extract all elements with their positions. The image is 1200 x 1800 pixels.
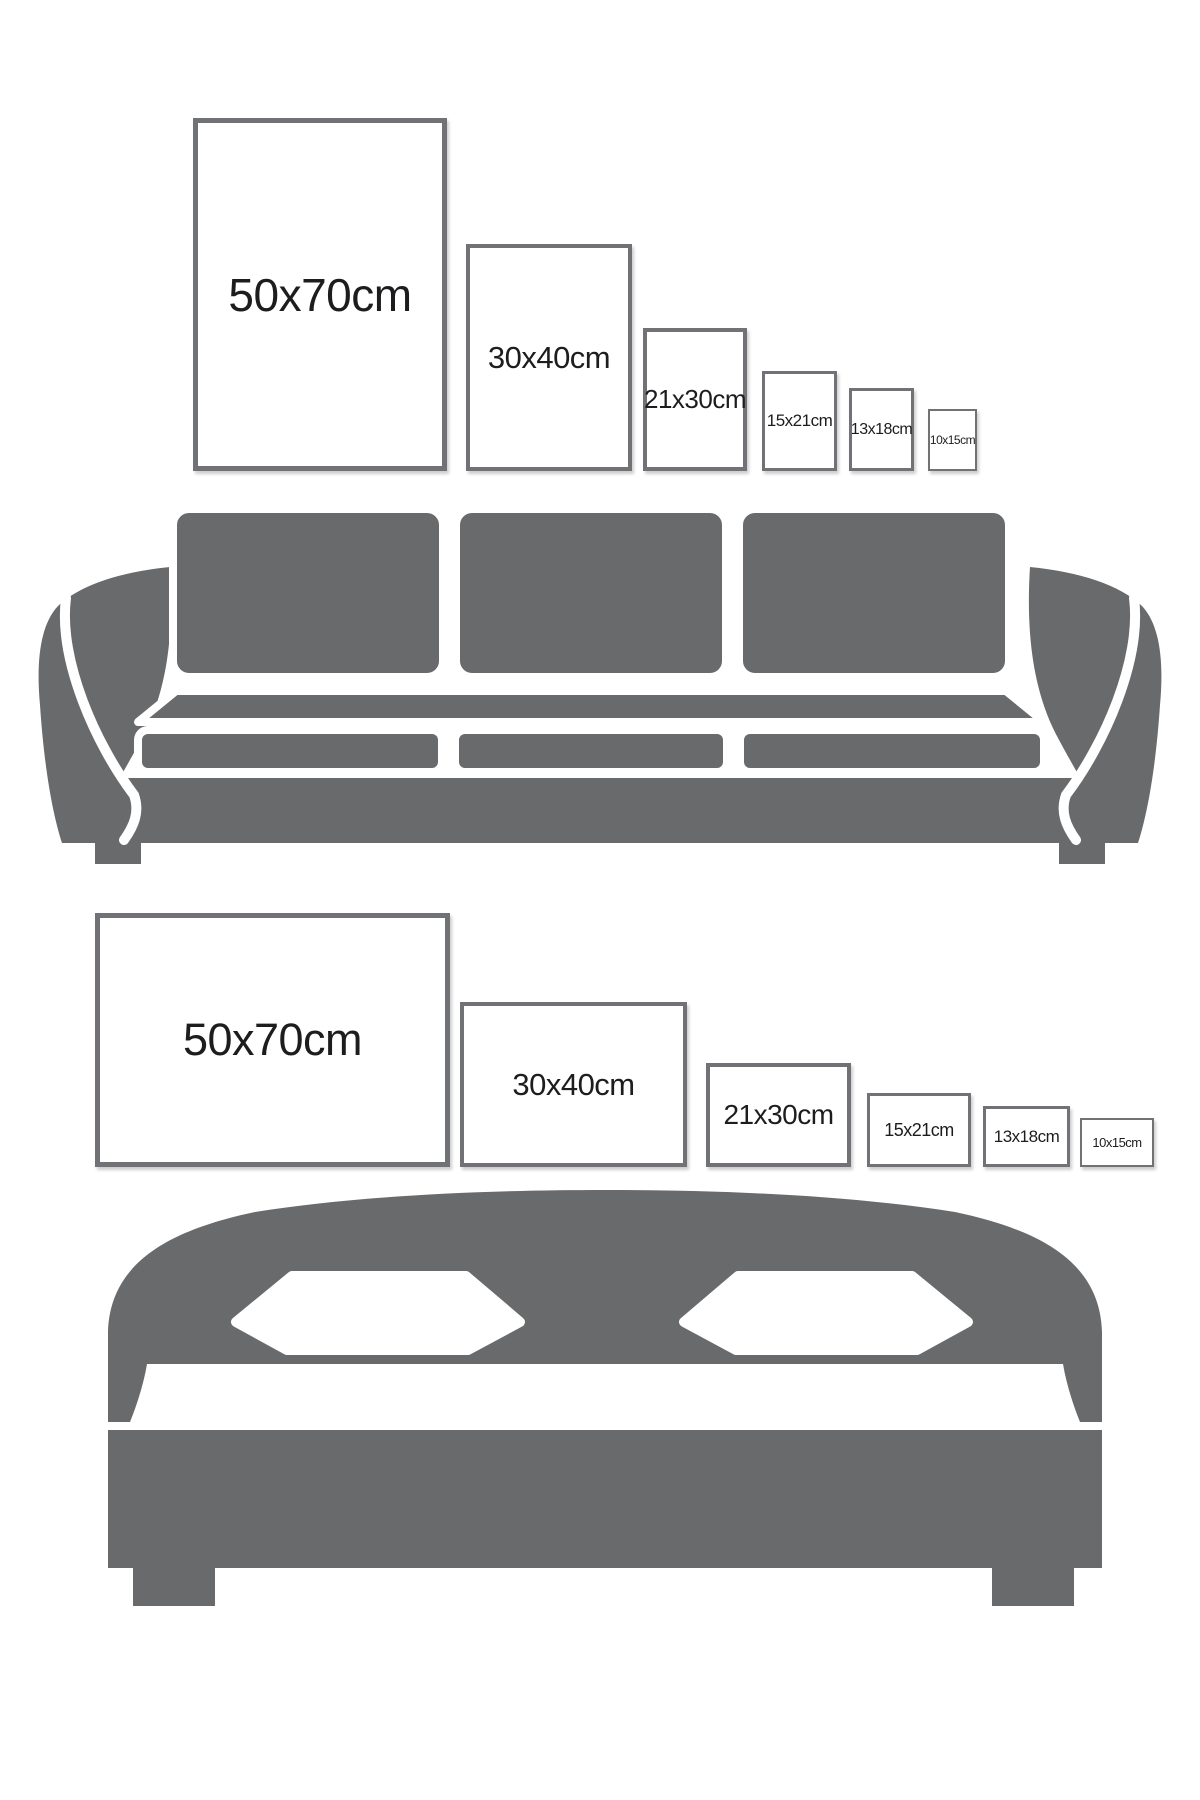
size-frame-30x40-landscape: 30x40cm — [460, 1002, 687, 1167]
size-label: 30x40cm — [512, 1067, 634, 1103]
size-label: 13x18cm — [994, 1127, 1059, 1147]
size-label: 15x21cm — [767, 411, 832, 431]
size-frame-13x18-landscape: 13x18cm — [983, 1106, 1070, 1167]
sofa-foot-right — [1059, 840, 1105, 864]
sofa-seat-cushion — [138, 730, 442, 772]
size-label: 21x30cm — [723, 1099, 833, 1131]
size-frame-10x15-landscape: 10x15cm — [1080, 1118, 1154, 1167]
sofa-arm-contour-right — [1064, 598, 1135, 840]
bed-icon — [108, 1190, 1102, 1606]
sofa-icon — [39, 509, 1162, 864]
sofa-back-cushion — [739, 509, 1009, 677]
size-label: 50x70cm — [183, 1014, 362, 1066]
bed-pillow-left — [236, 1276, 520, 1350]
size-label: 10x15cm — [930, 433, 975, 447]
size-guide-canvas: 50x70cm 30x40cm 21x30cm 15x21cm 13x18cm … — [0, 0, 1200, 1800]
bed-base — [108, 1430, 1102, 1568]
size-label: 50x70cm — [228, 268, 411, 322]
size-frame-21x30-landscape: 21x30cm — [706, 1063, 851, 1167]
size-label: 15x21cm — [884, 1120, 954, 1141]
size-frame-15x21-landscape: 15x21cm — [867, 1093, 971, 1167]
bed-foot-left — [133, 1568, 215, 1606]
sofa-body — [39, 567, 1162, 843]
size-label: 30x40cm — [488, 340, 610, 376]
size-frame-21x30-portrait: 21x30cm — [643, 328, 747, 471]
size-frame-13x18-portrait: 13x18cm — [849, 388, 914, 471]
bed-pillow-right — [684, 1276, 968, 1350]
size-label: 13x18cm — [851, 421, 912, 439]
bed-headboard — [108, 1190, 1102, 1422]
size-frame-50x70-landscape: 50x70cm — [95, 913, 450, 1167]
sofa-back-cushion — [173, 509, 443, 677]
size-frame-30x40-portrait: 30x40cm — [466, 244, 632, 471]
size-label: 10x15cm — [1092, 1135, 1141, 1150]
sofa-seat-cushion — [740, 730, 1044, 772]
sofa-deck — [138, 691, 1044, 722]
size-frame-15x21-portrait: 15x21cm — [762, 371, 837, 471]
sofa-seat-cushion — [455, 730, 727, 772]
sofa-back-cushion — [456, 509, 726, 677]
sofa-arm-contour-left — [65, 598, 136, 840]
size-frame-10x15-portrait: 10x15cm — [928, 409, 977, 471]
size-label: 21x30cm — [644, 384, 746, 415]
size-frame-50x70-portrait: 50x70cm — [193, 118, 447, 471]
bed-foot-right — [992, 1568, 1074, 1606]
sofa-foot-left — [95, 840, 141, 864]
